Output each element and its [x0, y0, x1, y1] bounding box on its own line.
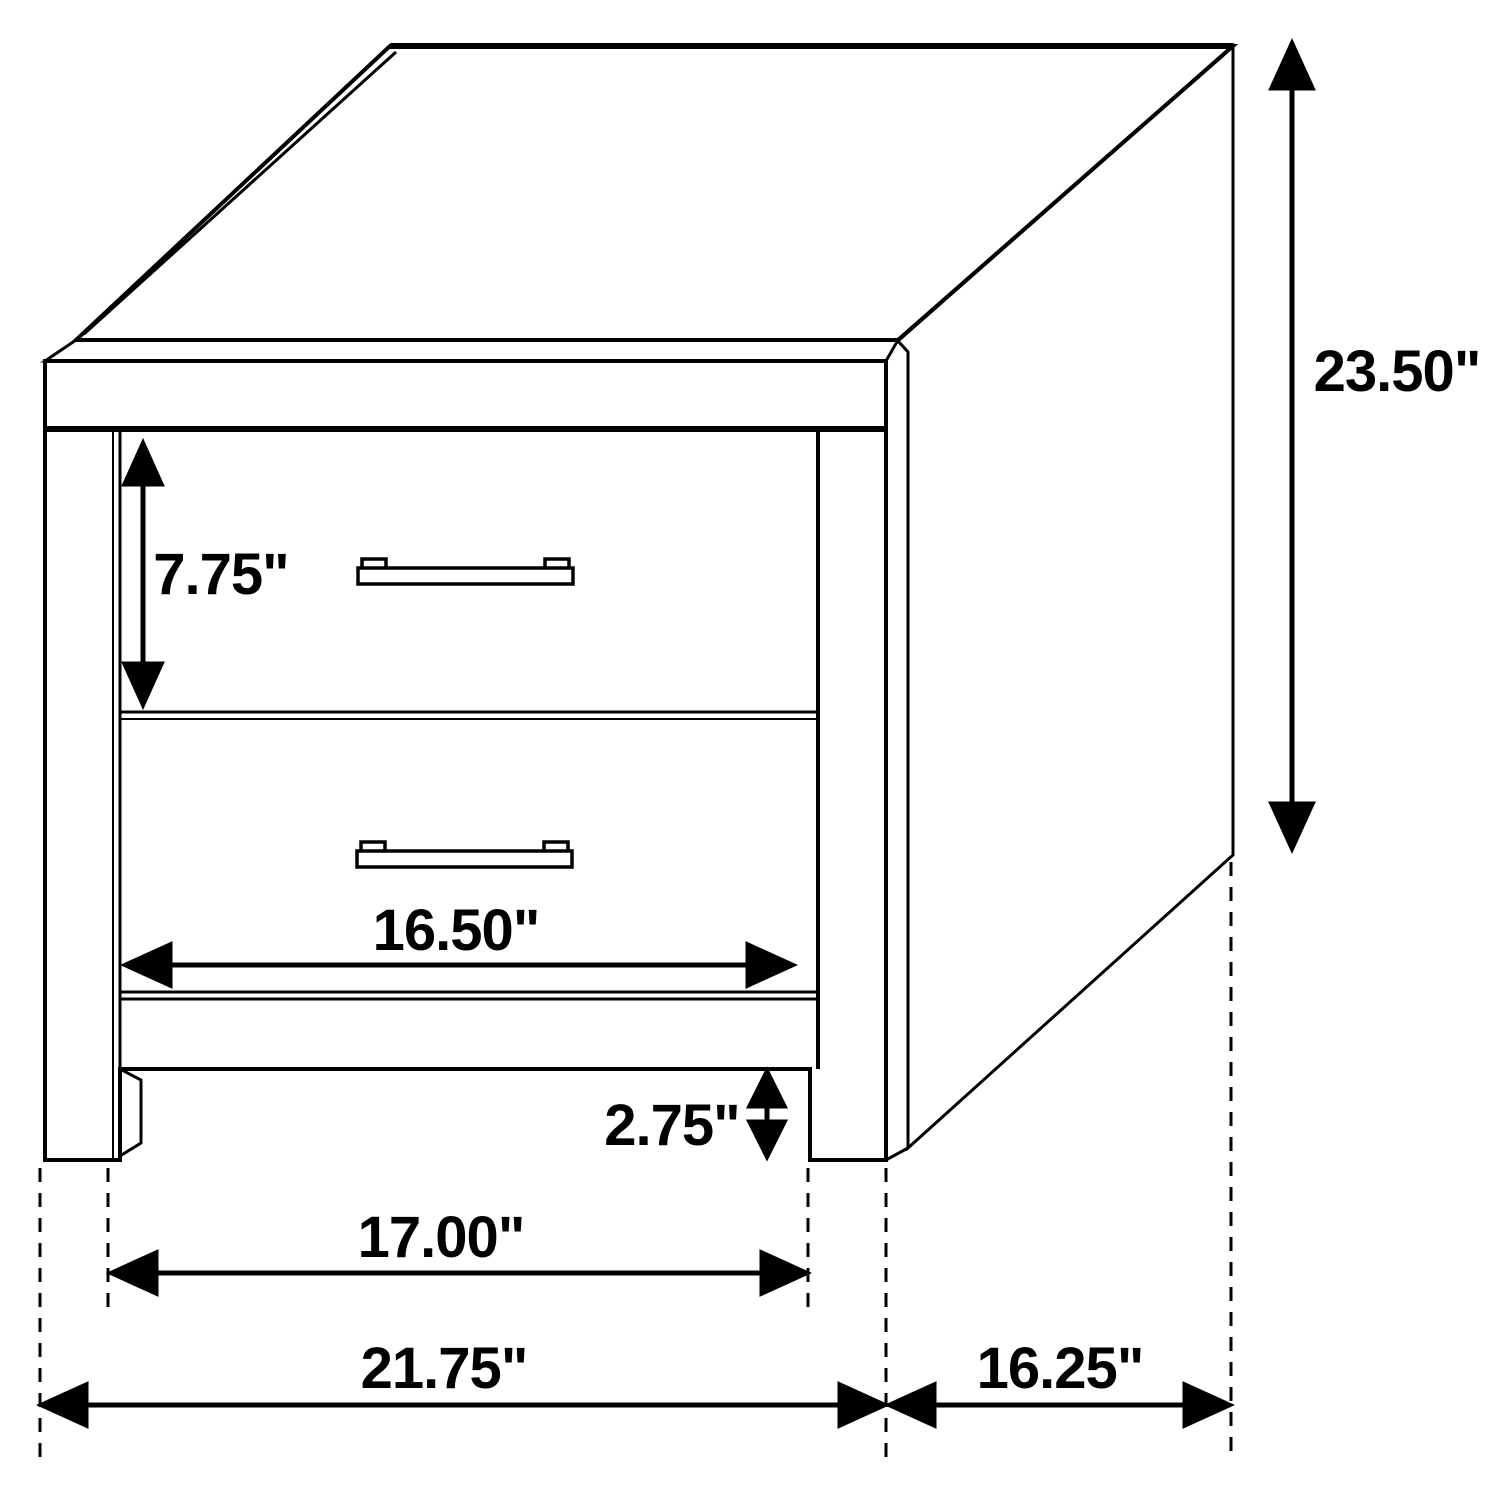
- top-front-edge-band: [45, 340, 898, 361]
- right-leg-side-bottom-edge: [886, 1148, 908, 1160]
- dim-overall-width: 21.75": [42, 1336, 884, 1425]
- dim-floor-clearance: 2.75": [604, 1072, 784, 1158]
- dim-label-side-depth: 16.25": [977, 1336, 1144, 1401]
- dim-label-overall-height: 23.50": [1314, 339, 1481, 404]
- handle-bar: [358, 568, 573, 584]
- diagram-canvas: 23.50" 7.75" 16.50" 2.75" 17.00" 21.75": [0, 0, 1500, 1500]
- dim-inner-leg-width: 17.00": [112, 1205, 806, 1293]
- dim-label-overall-width: 21.75": [361, 1336, 528, 1401]
- nightstand-dimension-diagram: 23.50" 7.75" 16.50" 2.75" 17.00" 21.75": [0, 0, 1500, 1500]
- dim-side-depth: 16.25": [890, 1336, 1229, 1425]
- handle-bar: [357, 851, 572, 867]
- dim-arrow-overall-height: [1272, 44, 1312, 848]
- front-frame: [45, 361, 886, 1160]
- dim-label-drawer-front-width: 16.50": [373, 898, 540, 963]
- dim-overall-height: 23.50": [1272, 44, 1480, 848]
- dim-label-floor-clearance: 2.75": [604, 1093, 739, 1158]
- dim-arrow-floor-clearance: [750, 1072, 784, 1156]
- dim-label-drawer-front-height: 7.75": [153, 542, 288, 607]
- left-leg-side-face: [120, 1069, 141, 1156]
- top-face: [76, 46, 1233, 340]
- dim-label-inner-leg-width: 17.00": [358, 1205, 525, 1270]
